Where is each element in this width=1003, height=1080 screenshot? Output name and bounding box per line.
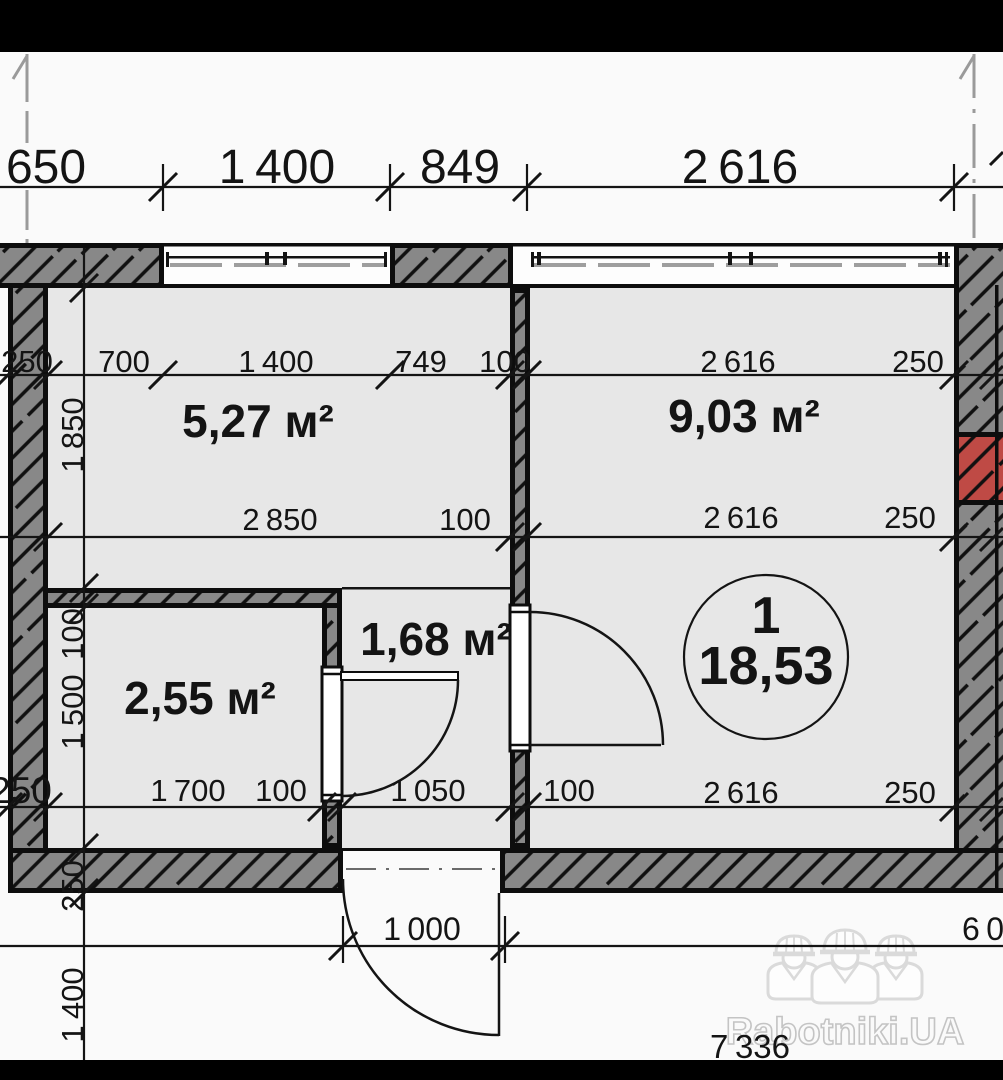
svg-text:1,68 м²: 1,68 м² [360,613,512,665]
svg-text:250: 250 [55,860,90,912]
svg-text:100: 100 [543,773,595,808]
svg-text:100: 100 [55,608,90,660]
svg-text:250: 250 [884,775,936,810]
svg-text:1 700: 1 700 [150,773,225,808]
svg-text:18,53: 18,53 [698,636,833,696]
svg-text:749: 749 [395,344,447,379]
svg-text:250: 250 [0,770,52,811]
svg-text:7 336: 7 336 [710,1028,790,1065]
svg-text:1 850: 1 850 [55,397,90,472]
svg-text:9,03 м²: 9,03 м² [668,390,820,442]
svg-text:2 616: 2 616 [700,344,775,379]
svg-text:2,55 м²: 2,55 м² [124,672,276,724]
svg-text:650: 650 [6,141,86,194]
svg-text:2 616: 2 616 [682,141,798,194]
svg-text:6 000: 6 000 [962,911,1003,947]
svg-text:2 616: 2 616 [703,775,778,810]
svg-text:100: 100 [439,502,491,537]
svg-text:1 050: 1 050 [390,773,465,808]
svg-text:849: 849 [420,141,500,194]
svg-text:700: 700 [98,344,150,379]
svg-text:2 850: 2 850 [242,502,317,537]
svg-text:2 616: 2 616 [703,500,778,535]
svg-text:5,27 м²: 5,27 м² [182,395,334,447]
svg-text:1 400: 1 400 [238,344,313,379]
svg-text:1 500: 1 500 [55,674,90,749]
svg-text:1 000: 1 000 [383,911,461,947]
svg-text:100: 100 [255,773,307,808]
svg-text:250: 250 [884,500,936,535]
svg-text:250: 250 [892,344,944,379]
svg-text:1 400: 1 400 [55,967,90,1042]
svg-text:1 400: 1 400 [219,141,335,194]
svg-text:100: 100 [479,344,531,379]
svg-text:250: 250 [1,344,53,379]
